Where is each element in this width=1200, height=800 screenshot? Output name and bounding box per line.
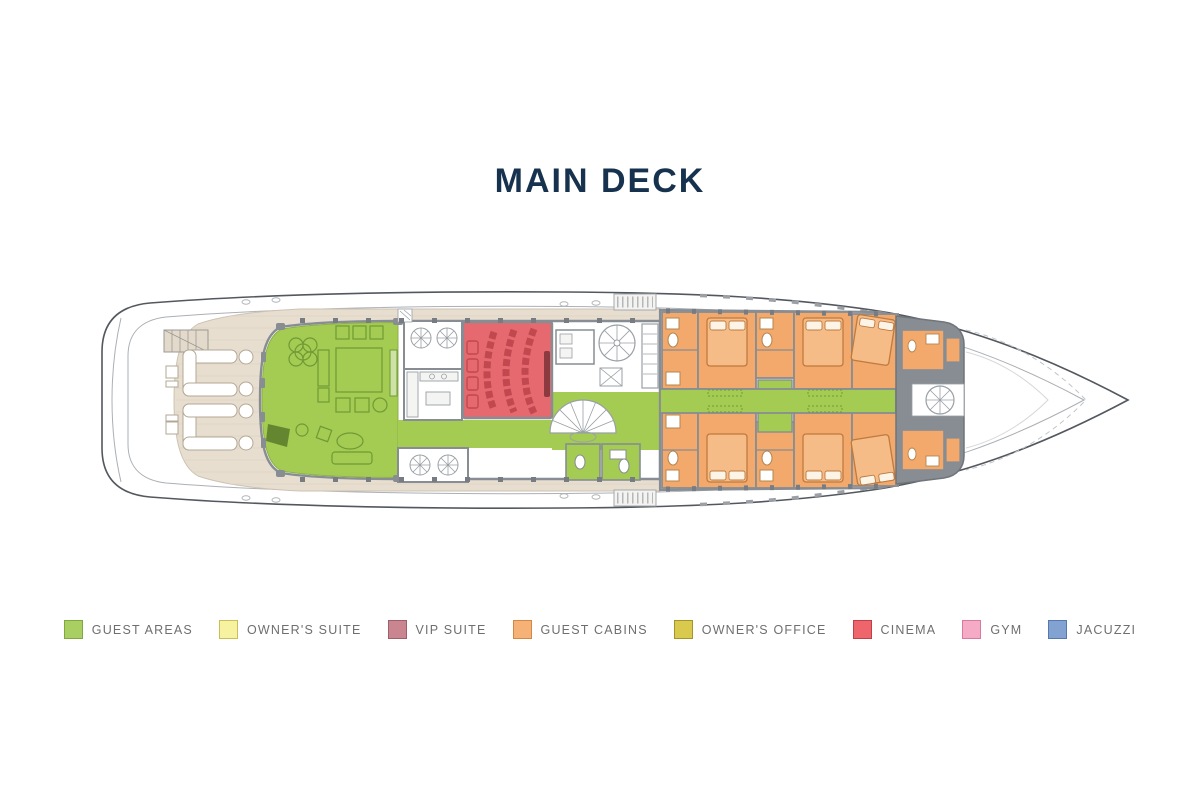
pillow bbox=[825, 321, 841, 330]
sink bbox=[926, 334, 939, 344]
pillow bbox=[860, 475, 876, 485]
bow-spiral-treads bbox=[926, 386, 954, 414]
window-mullion bbox=[260, 412, 265, 422]
legend-swatch-cinema bbox=[853, 620, 872, 639]
deck-table bbox=[239, 350, 253, 364]
guest-cabin-block bbox=[660, 310, 898, 490]
lobby-counter bbox=[560, 348, 572, 358]
toilet bbox=[575, 455, 585, 469]
galley-block bbox=[398, 309, 468, 482]
legend: GUEST AREAS OWNER'S SUITE VIP SUITE GUES… bbox=[0, 620, 1200, 639]
toilet bbox=[668, 451, 678, 465]
legend-swatch-guest-areas bbox=[64, 620, 83, 639]
sofa bbox=[183, 404, 237, 417]
legend-item-cinema: CINEMA bbox=[853, 620, 937, 639]
ladder-hatch bbox=[614, 294, 656, 310]
legend-item-owners-office: OWNER'S OFFICE bbox=[674, 620, 827, 639]
sofa bbox=[183, 383, 237, 396]
pillow bbox=[806, 321, 822, 330]
tv-cabinet bbox=[390, 350, 397, 396]
window-mullion bbox=[261, 352, 266, 362]
sink bbox=[760, 470, 773, 481]
toilet bbox=[762, 333, 772, 347]
pillow bbox=[825, 471, 841, 480]
ladder-hatch bbox=[614, 490, 656, 506]
bow-locker bbox=[946, 338, 960, 362]
cleat bbox=[560, 494, 568, 498]
pillow bbox=[878, 472, 894, 482]
deck-table bbox=[239, 436, 253, 450]
legend-swatch-owners-suite bbox=[219, 620, 238, 639]
bow-service-block bbox=[896, 316, 964, 484]
fan-table-spokes bbox=[438, 455, 458, 475]
pillow bbox=[729, 471, 745, 480]
legend-label: GYM bbox=[990, 623, 1022, 637]
lounge-chair bbox=[166, 381, 178, 387]
lounge-chair bbox=[166, 366, 178, 378]
cinema-screen bbox=[544, 351, 550, 397]
window-mullion bbox=[261, 438, 266, 448]
legend-label: VIP SUITE bbox=[416, 623, 487, 637]
pillow bbox=[710, 321, 726, 330]
cleat bbox=[272, 498, 280, 502]
galley-counter bbox=[420, 372, 458, 381]
pillow bbox=[859, 318, 875, 328]
lounge-chair bbox=[166, 415, 178, 421]
wall-post bbox=[276, 470, 285, 477]
sink bbox=[926, 456, 939, 466]
galley-counter bbox=[407, 372, 418, 417]
sink bbox=[666, 470, 679, 481]
salon-floor bbox=[262, 323, 398, 478]
lounge-chair bbox=[166, 422, 178, 434]
toilet bbox=[908, 448, 916, 460]
legend-label: CINEMA bbox=[881, 623, 937, 637]
deck-table bbox=[239, 382, 253, 396]
cleat bbox=[560, 302, 568, 306]
page: MAIN DECK bbox=[0, 0, 1200, 800]
legend-label: GUEST CABINS bbox=[541, 623, 648, 637]
deck-plan bbox=[0, 0, 1200, 800]
legend-swatch-jacuzzi bbox=[1048, 620, 1067, 639]
legend-item-gym: GYM bbox=[962, 620, 1022, 639]
shower bbox=[666, 372, 680, 385]
legend-item-guest-cabins: GUEST CABINS bbox=[513, 620, 648, 639]
legend-label: JACUZZI bbox=[1076, 623, 1136, 637]
pillow bbox=[806, 471, 822, 480]
bow-locker bbox=[946, 438, 960, 462]
cleat bbox=[242, 300, 250, 304]
sink bbox=[666, 318, 679, 329]
toilet bbox=[668, 333, 678, 347]
fan-table-spokes bbox=[410, 455, 430, 475]
legend-swatch-owners-office bbox=[674, 620, 693, 639]
legend-swatch-vip-suite bbox=[388, 620, 407, 639]
lobby-counter bbox=[560, 334, 572, 344]
wall-post bbox=[276, 323, 285, 330]
legend-swatch-guest-cabins bbox=[513, 620, 532, 639]
cabin-corridor bbox=[660, 389, 896, 413]
fan-table-spokes bbox=[411, 328, 431, 348]
legend-label: OWNER'S OFFICE bbox=[702, 623, 827, 637]
spiral-staircase-post bbox=[614, 340, 620, 346]
toilet bbox=[908, 340, 916, 352]
window-mullion bbox=[260, 378, 265, 388]
legend-label: GUEST AREAS bbox=[92, 623, 193, 637]
fan-table-spokes bbox=[437, 328, 457, 348]
sink bbox=[610, 450, 626, 459]
pillow bbox=[878, 321, 894, 331]
deck-table bbox=[239, 404, 253, 418]
legend-item-guest-areas: GUEST AREAS bbox=[64, 620, 193, 639]
cinema-room bbox=[463, 322, 552, 418]
sink bbox=[760, 318, 773, 329]
toilet bbox=[619, 459, 629, 473]
cleat bbox=[242, 496, 250, 500]
salon-guest-area bbox=[260, 318, 403, 482]
cleat bbox=[592, 301, 600, 305]
toilet bbox=[762, 451, 772, 465]
sofa bbox=[183, 437, 237, 450]
shower bbox=[666, 415, 680, 428]
legend-swatch-gym bbox=[962, 620, 981, 639]
legend-item-owners-suite: OWNER'S SUITE bbox=[219, 620, 362, 639]
legend-item-vip-suite: VIP SUITE bbox=[388, 620, 487, 639]
legend-label: OWNER'S SUITE bbox=[247, 623, 362, 637]
legend-item-jacuzzi: JACUZZI bbox=[1048, 620, 1136, 639]
cleat bbox=[272, 298, 280, 302]
galley-island bbox=[426, 392, 450, 405]
pillow bbox=[710, 471, 726, 480]
pillow bbox=[729, 321, 745, 330]
cleat bbox=[592, 495, 600, 499]
